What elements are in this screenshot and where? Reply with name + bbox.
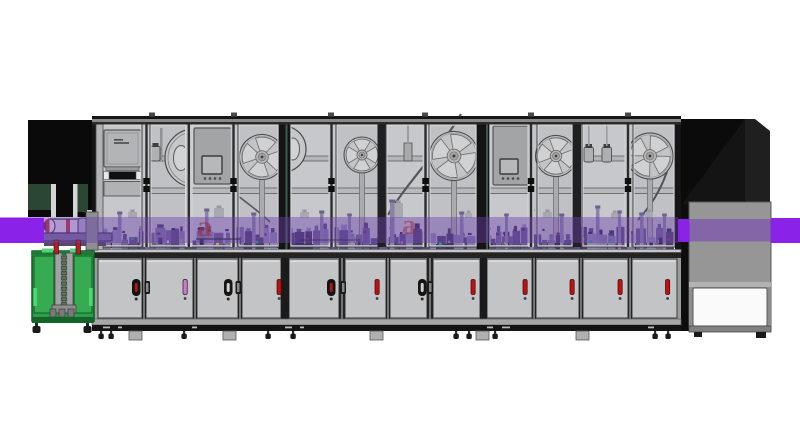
svg-text:a: a [402,210,416,241]
